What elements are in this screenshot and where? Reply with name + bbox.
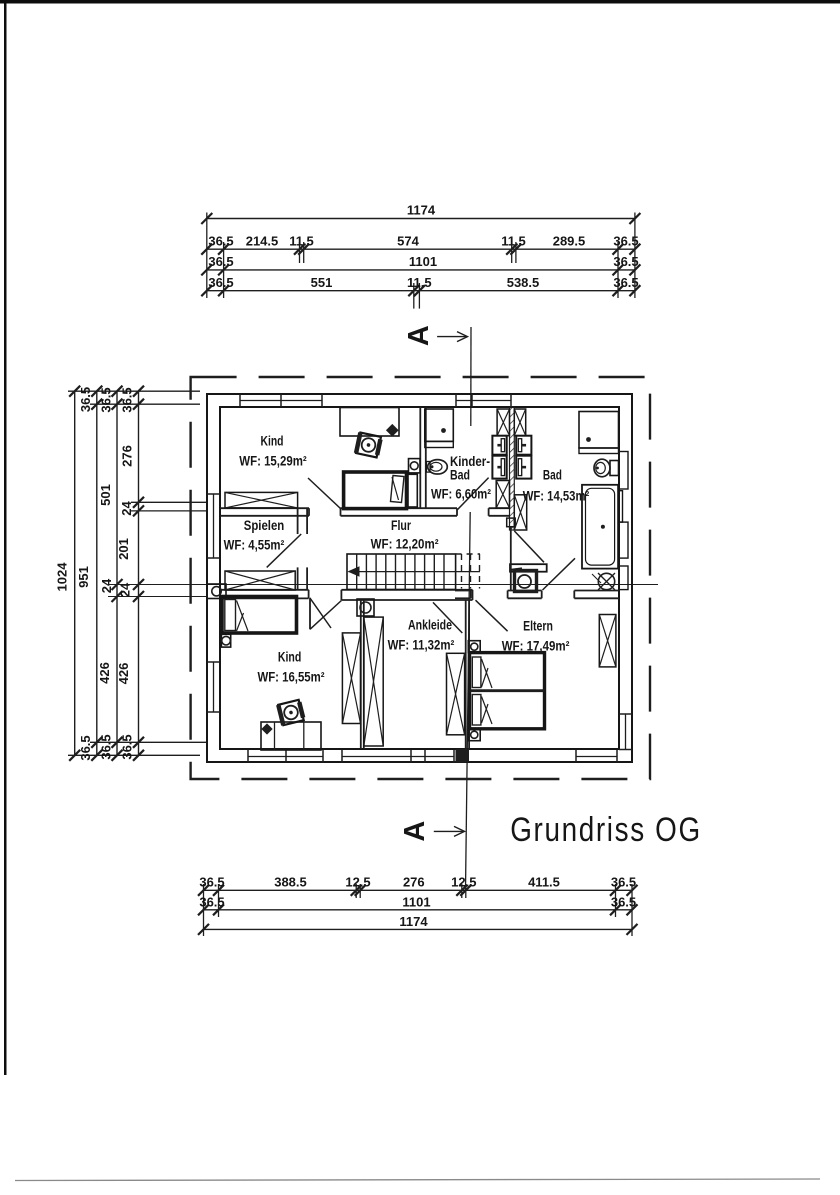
svg-text:WF: 16,55m²: WF: 16,55m² [257,669,324,685]
svg-text:538.5: 538.5 [507,275,540,290]
svg-text:501: 501 [98,484,113,506]
svg-text:36.5: 36.5 [208,233,233,248]
svg-text:426: 426 [116,663,131,685]
svg-text:36.5: 36.5 [78,387,93,412]
svg-text:36.5: 36.5 [99,387,114,412]
svg-text:Kind: Kind [261,433,284,449]
svg-text:WF: 17,49m²: WF: 17,49m² [502,638,570,654]
svg-text:11.5: 11.5 [407,275,432,290]
svg-text:36.5: 36.5 [613,254,638,269]
svg-text:WF: 6,60m²: WF: 6,60m² [431,486,491,502]
svg-text:1174: 1174 [407,203,436,218]
svg-text:1101: 1101 [409,254,437,269]
svg-text:1174: 1174 [399,914,428,929]
svg-text:276: 276 [403,875,425,890]
svg-text:Flur: Flur [391,517,411,533]
svg-text:426: 426 [97,662,112,684]
svg-text:WF: 15,29m²: WF: 15,29m² [239,453,307,469]
svg-text:12.5: 12.5 [345,875,370,890]
svg-text:Kind: Kind [278,649,301,665]
svg-text:Spielen: Spielen [244,517,285,533]
svg-text:Bad: Bad [543,467,562,483]
svg-text:36.5: 36.5 [613,275,638,290]
svg-text:36.5: 36.5 [120,734,135,759]
svg-text:1024: 1024 [55,562,70,592]
svg-text:11.5: 11.5 [501,233,526,248]
svg-text:24: 24 [99,578,114,593]
svg-text:36.5: 36.5 [611,875,636,890]
svg-text:WF: 11,32m²: WF: 11,32m² [388,637,455,653]
svg-text:Eltern: Eltern [523,618,553,634]
svg-text:36.5: 36.5 [78,735,93,760]
svg-text:214.5: 214.5 [246,233,279,248]
svg-text:36.5: 36.5 [613,233,638,248]
svg-text:36.5: 36.5 [199,875,224,890]
svg-text:11.5: 11.5 [289,233,314,248]
svg-text:36.5: 36.5 [208,254,233,269]
svg-text:36.5: 36.5 [120,387,135,412]
svg-text:36.5: 36.5 [99,734,114,759]
svg-text:36.5: 36.5 [208,275,233,290]
svg-text:289.5: 289.5 [553,233,586,248]
svg-text:WF: 12,20m²: WF: 12,20m² [371,536,439,552]
svg-text:276: 276 [120,445,135,467]
svg-text:24: 24 [119,501,134,516]
svg-text:951: 951 [76,566,91,588]
svg-text:Bad: Bad [450,467,470,483]
svg-text:12.5: 12.5 [451,875,476,890]
svg-text:A: A [399,821,431,842]
svg-text:A: A [403,325,435,346]
svg-text:551: 551 [311,275,333,290]
svg-text:201: 201 [116,538,131,560]
svg-text:WF: 14,53m²: WF: 14,53m² [523,488,590,504]
svg-text:388.5: 388.5 [274,875,307,890]
svg-text:24: 24 [118,582,133,597]
svg-text:Ankleide: Ankleide [408,617,452,633]
svg-text:1101: 1101 [402,894,430,909]
svg-text:Grundriss OG: Grundriss OG [510,810,702,848]
svg-text:WF: 4,55m²: WF: 4,55m² [224,537,285,553]
svg-text:36.5: 36.5 [199,894,224,909]
svg-text:36.5: 36.5 [611,894,636,909]
svg-text:411.5: 411.5 [528,875,560,890]
svg-text:574: 574 [397,233,419,248]
